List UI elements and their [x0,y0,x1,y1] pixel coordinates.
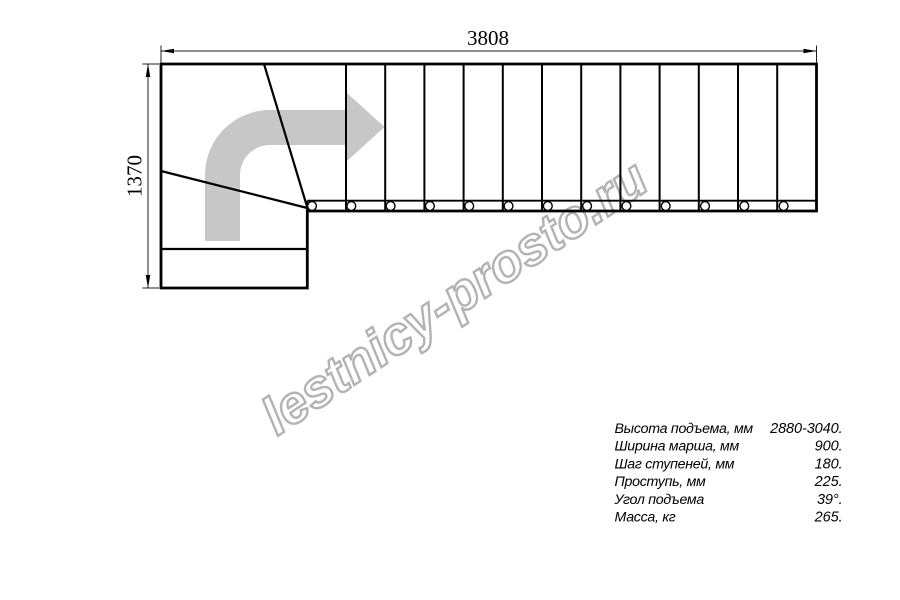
svg-text:265.: 265. [814,510,843,526]
svg-text:39°.: 39°. [817,492,843,508]
svg-text:Ширина марша, мм: Ширина марша, мм [615,439,740,455]
svg-text:225.: 225. [814,474,843,490]
svg-text:Проступь, мм: Проступь, мм [615,474,707,490]
svg-text:Угол подъема: Угол подъема [614,492,705,508]
svg-text:2880-3040.: 2880-3040. [769,421,842,437]
svg-text:Шаг ступеней, мм: Шаг ступеней, мм [615,456,735,472]
svg-text:900.: 900. [815,439,843,455]
svg-text:3808: 3808 [467,26,509,50]
svg-text:1370: 1370 [123,155,147,197]
svg-text:180.: 180. [815,456,843,472]
svg-text:Масса, кг: Масса, кг [615,510,676,526]
svg-text:Высота подъема, мм: Высота подъема, мм [615,421,754,437]
